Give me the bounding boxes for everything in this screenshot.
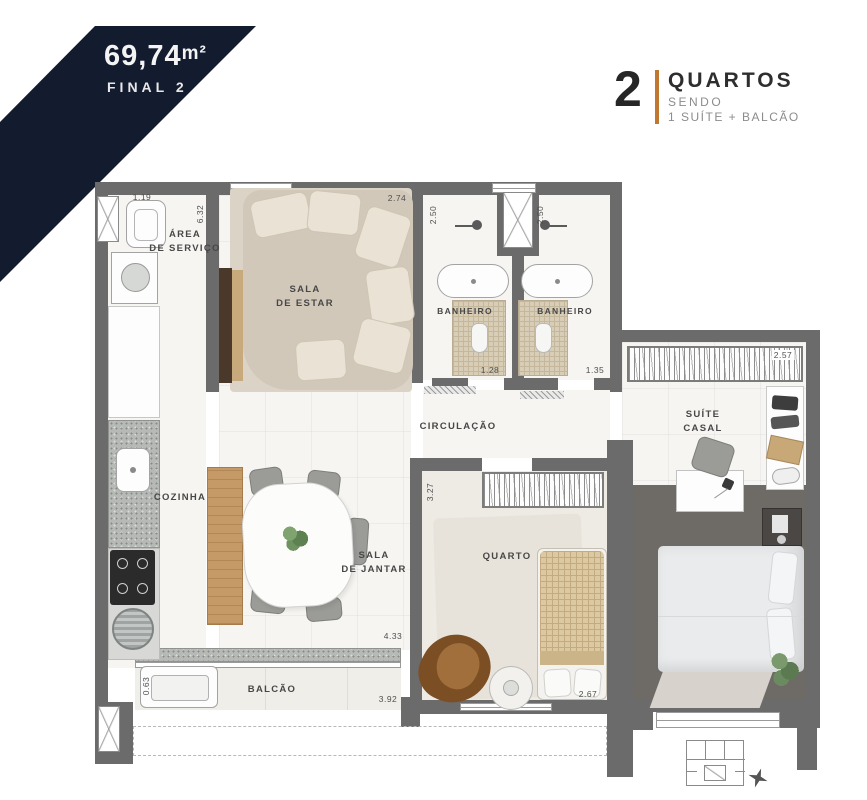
burner	[117, 583, 128, 594]
north-arrow-icon	[745, 765, 770, 790]
tub-faucet	[471, 279, 476, 284]
door-threshold-banheiro1	[424, 386, 476, 394]
kitchen-sink	[116, 448, 150, 492]
label-quarto: QUARTO	[483, 550, 532, 564]
washer-drum	[121, 263, 150, 292]
wall-suite-top	[610, 330, 820, 342]
badge-area-unit: m²	[182, 43, 207, 64]
label-sala-jantar: SALA DE JANTAR	[341, 549, 406, 577]
keyplan-line	[687, 771, 697, 772]
shower-head-icon	[472, 220, 482, 230]
dim-banheiro1-width: 1.28	[481, 365, 500, 375]
dim-estar-width: 2.74	[388, 193, 407, 203]
label-area-servico: ÁREA DE SERVIÇO	[149, 228, 220, 256]
grill-top	[151, 675, 209, 701]
tv-rack	[232, 270, 243, 381]
wall-servico-sala	[206, 182, 219, 392]
bed-foot-band	[540, 651, 604, 665]
sink-faucet	[130, 467, 136, 473]
dim-banheiro1-height: 2.50	[428, 206, 438, 225]
badge-final-text: FINAL 2	[107, 79, 188, 95]
label-suite-casal: SUÍTE CASAL	[683, 408, 722, 436]
header-title: QUARTOS	[668, 69, 794, 93]
header-detail: 1 SUÍTE + BALCÃO	[668, 110, 800, 124]
duct-shaft-left-top	[97, 196, 119, 242]
dim-servico-height: 6.32	[195, 205, 205, 224]
dim-quarto-height: 3.27	[425, 483, 435, 502]
window-glass-line	[657, 720, 779, 721]
wall-balcao-corner	[401, 697, 420, 727]
keyplan-line	[705, 741, 706, 759]
badge-area-text: 69,74m²	[104, 40, 207, 73]
keyplan-line	[735, 771, 745, 772]
bathtub-banheiro-1	[437, 264, 509, 298]
pillow	[767, 551, 798, 605]
tv-panel	[219, 268, 232, 383]
label-balcao: BALCÃO	[248, 683, 296, 697]
duct-shaft-left-bottom	[98, 706, 120, 752]
armchair-cushion	[428, 636, 487, 696]
wall-banheiro-bottom-b	[504, 378, 558, 390]
bathtub-banheiro-2	[521, 264, 593, 298]
dim-banheiro2-height: 2.50	[535, 206, 545, 225]
wardrobe-quarto	[482, 472, 604, 508]
wall-right	[806, 330, 820, 712]
wall-banheiro-bottom-c	[594, 378, 622, 390]
dim-quarto-width: 2.67	[579, 689, 598, 699]
balcao-grill-bench	[140, 666, 218, 708]
keyplan-line	[687, 759, 745, 760]
window-suite	[656, 712, 780, 728]
label-sala-estar: SALA DE ESTAR	[276, 283, 334, 311]
header-subtitle: SENDO	[668, 95, 723, 109]
projection-dashed-outline	[133, 726, 607, 756]
desk-suite	[676, 470, 744, 512]
balcao-floor-joint	[347, 668, 348, 710]
table-plant	[278, 520, 312, 554]
bedspread-checker	[540, 551, 604, 651]
nightstand-suite	[762, 508, 802, 546]
wall-quarto-top-a	[420, 458, 482, 471]
window-glass-line	[493, 188, 535, 189]
nightstand-lamp	[772, 515, 788, 533]
plant-suite	[766, 642, 800, 690]
dim-balcao-depth: 0.63	[141, 677, 151, 696]
wall-quarto-top-b	[532, 458, 622, 471]
burner	[137, 583, 148, 594]
header-accent-bar	[655, 70, 659, 124]
bed-fold-line	[658, 616, 804, 617]
nightstand-knob	[777, 535, 786, 544]
wall-quarto-suite	[607, 440, 633, 712]
sofa-cushion	[295, 338, 348, 381]
label-banheiro-2: BANHEIRO	[537, 305, 593, 317]
counter-balcao-divider	[135, 648, 401, 662]
label-circulacao: CIRCULAÇÃO	[420, 420, 497, 434]
water-heater	[112, 608, 154, 650]
wall-left	[95, 182, 108, 702]
label-banheiro-1: BANHEIRO	[437, 305, 493, 317]
label-cozinha: COZINHA	[154, 491, 206, 505]
tub-faucet	[555, 279, 560, 284]
bed-quarto	[537, 548, 607, 700]
counter-servico	[108, 306, 160, 418]
dim-servico-width: 1.19	[133, 192, 152, 202]
dim-balcao-width: 3.92	[379, 694, 398, 704]
wall-right-stub	[797, 728, 817, 770]
side-table-quarto	[489, 666, 533, 710]
toilet	[471, 323, 488, 353]
stove	[110, 550, 155, 605]
wall-suite-corner	[780, 712, 820, 728]
keyplan-core	[704, 765, 726, 781]
door-threshold-suite	[520, 391, 564, 399]
badge-area-value: 69,74	[104, 40, 182, 72]
desk-pen	[714, 489, 728, 499]
wall-pillar	[607, 700, 633, 777]
pillow	[543, 668, 572, 698]
toilet	[535, 323, 552, 353]
dim-banheiro2-width: 1.35	[586, 365, 605, 375]
wall-banheiro-right	[610, 182, 622, 342]
header-number: 2	[614, 64, 642, 114]
sofa-cushion	[306, 189, 362, 236]
dim-jantar-length: 4.33	[384, 631, 403, 641]
shelf-clothes-stack	[772, 395, 799, 411]
building-keyplan	[686, 740, 744, 786]
keyplan-line	[724, 741, 725, 759]
duct-shaft-banheiros	[503, 192, 533, 248]
sofa-cushion	[364, 265, 415, 327]
burner	[137, 558, 148, 569]
washing-machine	[111, 252, 158, 304]
side-table-center	[503, 680, 519, 696]
burner	[117, 558, 128, 569]
dim-suite-closet-width: 2.57	[772, 350, 795, 360]
kitchen-island	[207, 467, 243, 625]
